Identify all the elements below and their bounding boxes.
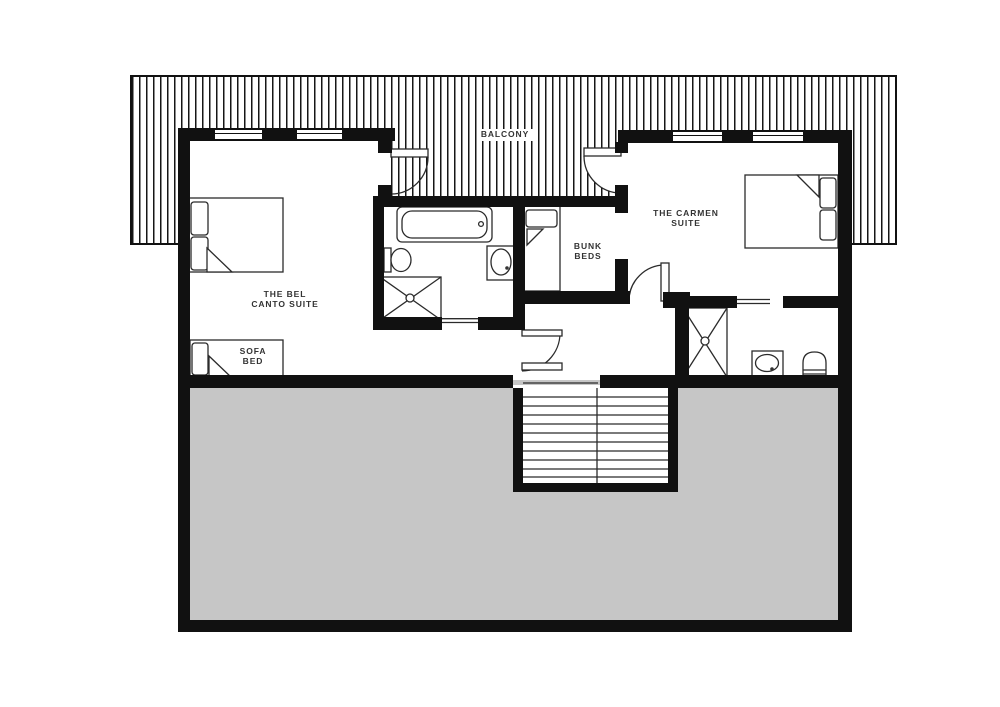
staircase-treads xyxy=(523,383,668,483)
sink xyxy=(487,246,515,280)
bathtub xyxy=(397,207,492,242)
wall xyxy=(178,375,513,388)
stair-door xyxy=(522,330,562,371)
wall xyxy=(668,388,678,492)
sofa-bed-line2: BED xyxy=(240,357,267,367)
balcony-label-text: BALCONY xyxy=(481,129,529,139)
wall xyxy=(178,128,395,141)
balcony-door-left xyxy=(391,149,428,194)
balcony-label: BALCONY xyxy=(477,129,533,141)
window xyxy=(215,128,262,141)
window xyxy=(673,130,722,143)
bunk-beds-line2: BEDS xyxy=(574,252,602,262)
carmen-suite-label: THE CARMEN SUITE xyxy=(653,209,719,228)
sofa-bed-label: SOFA BED xyxy=(240,347,267,366)
wall xyxy=(513,196,525,330)
wall xyxy=(615,142,628,153)
wall xyxy=(373,317,442,330)
sofa-bed xyxy=(190,340,283,378)
wall xyxy=(513,291,630,304)
wall xyxy=(675,292,689,388)
sink xyxy=(752,351,783,378)
bunk-bed xyxy=(521,204,560,291)
window xyxy=(297,128,342,141)
toilet xyxy=(803,352,826,376)
bunk-beds-label: BUNK BEDS xyxy=(574,242,602,261)
shower xyxy=(683,308,727,377)
shower xyxy=(380,277,441,320)
bel-canto-line2: CANTO SUITE xyxy=(251,300,318,310)
wall xyxy=(373,196,384,330)
carmen-suite-line2: SUITE xyxy=(653,219,719,229)
wall xyxy=(378,140,392,153)
window xyxy=(753,130,803,143)
bathroom-threshold xyxy=(442,319,478,323)
ensuite-threshold xyxy=(737,300,770,304)
wall xyxy=(838,130,852,632)
wall xyxy=(615,185,628,213)
bel-canto-suite-label: THE BEL CANTO SUITE xyxy=(251,290,318,309)
wall xyxy=(178,620,850,632)
wall xyxy=(618,130,850,143)
wall xyxy=(600,375,838,388)
toilet xyxy=(384,248,411,272)
double-bed xyxy=(188,198,283,272)
floor-plan: BALCONY THE BEL CANTO SUITE SOFA BED BUN… xyxy=(0,0,1000,707)
wall xyxy=(513,483,678,492)
wall xyxy=(513,388,523,492)
wall xyxy=(783,296,838,308)
wall xyxy=(373,196,627,207)
double-bed xyxy=(745,175,838,248)
